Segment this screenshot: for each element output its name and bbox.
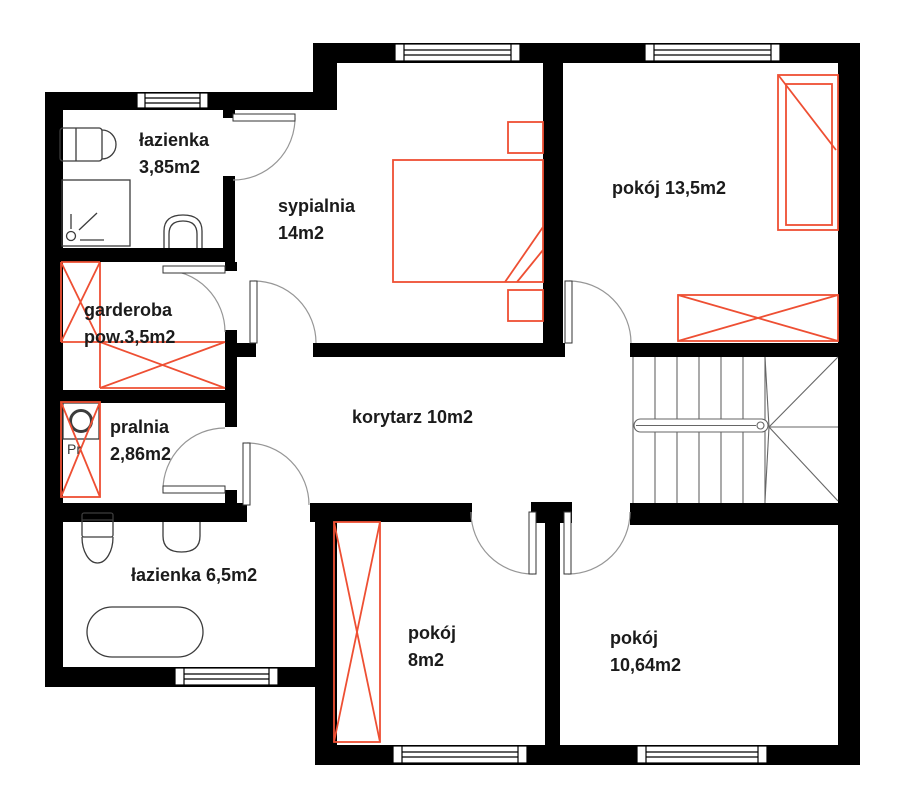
wall-segment	[225, 330, 237, 427]
wall-segment	[237, 343, 256, 357]
room-label-garderoba: garderoba pow.3,5m2	[84, 297, 175, 351]
floor-plan: łazienka 3,85m2 sypialnia 14m2 pokój 13,…	[0, 0, 910, 796]
washing-machine-label: Pr	[67, 441, 81, 457]
wall-segment	[225, 262, 237, 271]
room-label-pokoj-8: pokój 8m2	[408, 620, 456, 674]
wall-segment	[630, 503, 838, 525]
room-label-korytarz: korytarz 10m2	[352, 404, 473, 431]
wall-segment	[543, 43, 563, 343]
room-label-pokoj-10-64: pokój 10,64m2	[610, 625, 681, 679]
wall-segment	[313, 343, 565, 357]
room-label-lazienka-dolna: łazienka 6,5m2	[131, 562, 257, 589]
wall-segment	[630, 343, 838, 357]
handrail	[634, 419, 768, 432]
wall-segment	[45, 92, 63, 687]
window-icon	[645, 44, 780, 61]
wall-segment	[45, 503, 247, 522]
room-label-pralnia: pralnia 2,86m2	[110, 414, 171, 468]
window-icon	[137, 93, 208, 108]
room-label-lazienka-gorna: łazienka 3,85m2	[139, 127, 209, 181]
window-icon	[637, 746, 767, 763]
window-icon	[395, 44, 520, 61]
room-label-pokoj-13-5: pokój 13,5m2	[612, 175, 726, 202]
floor-plan-drawing	[0, 0, 910, 796]
window-icon	[175, 668, 278, 685]
window-icon	[393, 746, 527, 763]
room-label-sypialnia: sypialnia 14m2	[278, 193, 355, 247]
wall-segment	[225, 490, 237, 504]
wall-segment	[838, 43, 860, 765]
wall-segment	[63, 390, 237, 403]
wall-segment	[223, 176, 235, 248]
wall-segment	[545, 523, 560, 745]
wall-segment	[63, 248, 235, 262]
